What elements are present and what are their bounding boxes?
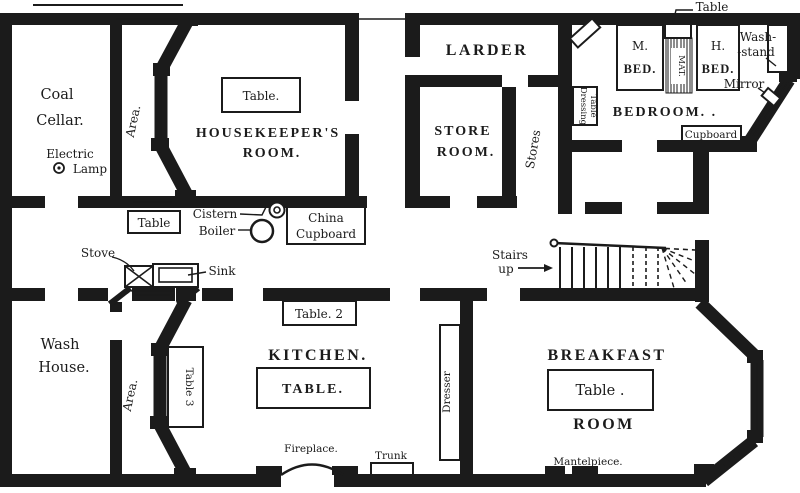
passage-table-label: Table bbox=[138, 216, 171, 230]
wash-house-label: Wash bbox=[40, 337, 79, 353]
floor-plan-drawing: Coal Cellar. Electric Lamp Area. HOUSEKE… bbox=[0, 0, 800, 493]
floor-plan: Coal Cellar. Electric Lamp Area. HOUSEKE… bbox=[0, 0, 800, 493]
m-bed-label2: BED. bbox=[624, 62, 657, 76]
mantelpiece-label: Mantelpiece. bbox=[553, 456, 622, 468]
stairs-label: Stairs bbox=[492, 248, 528, 262]
trunk-label: Trunk bbox=[375, 450, 408, 462]
breakfast-room-label2: ROOM bbox=[573, 416, 635, 433]
housekeeper-table-label: Table. bbox=[243, 89, 280, 103]
m-bed bbox=[617, 25, 663, 90]
wash-stand-label2: -stand bbox=[737, 45, 775, 59]
store-room-label2: ROOM. bbox=[437, 145, 496, 160]
stair-handrail bbox=[554, 243, 666, 248]
dressing-table-label2: Table bbox=[588, 94, 598, 117]
wash-stand-label: Wash- bbox=[740, 30, 776, 44]
coal-cellar-label: Coal bbox=[40, 87, 73, 103]
mat-label: MAT. bbox=[676, 55, 686, 77]
bedroom-small-table bbox=[665, 24, 691, 38]
stove-label: Stove bbox=[81, 246, 115, 260]
sink-label: Sink bbox=[208, 264, 236, 278]
cistern-label: Cistern bbox=[193, 207, 238, 221]
kitchen-table-label: TABLE. bbox=[282, 382, 344, 397]
dresser-label: Dresser bbox=[441, 370, 453, 413]
boiler-label: Boiler bbox=[199, 224, 236, 238]
mirror-label: Mirror bbox=[724, 77, 765, 91]
h-bed-label2: BED. bbox=[702, 62, 735, 76]
area-bottom-label: Area. bbox=[120, 378, 141, 414]
bedroom-table-callout: Table bbox=[696, 0, 729, 14]
coal-cellar-label2: Cellar. bbox=[36, 113, 84, 129]
kitchen-label: KITCHEN. bbox=[268, 347, 368, 364]
housekeepers-room-label: HOUSEKEEPER'S bbox=[196, 126, 340, 141]
boiler-circle bbox=[251, 220, 273, 242]
area-top-label: Area. bbox=[123, 104, 144, 140]
bedroom-label: BEDROOM. . bbox=[613, 105, 717, 120]
table3-label: Table 3 bbox=[183, 368, 195, 407]
stairs-label2: up bbox=[498, 262, 514, 276]
cupboard-label: Cupboard bbox=[685, 129, 738, 141]
breakfast-table-label: Table . bbox=[576, 383, 625, 399]
m-bed-label: M. bbox=[632, 39, 648, 53]
store-room-label: STORE bbox=[434, 124, 491, 139]
table2-label: Table. 2 bbox=[295, 307, 343, 321]
china-cupboard-label2: Cupboard bbox=[296, 227, 356, 241]
stair-newel bbox=[551, 240, 558, 247]
fireplace-label: Fireplace. bbox=[284, 443, 338, 455]
electric-lamp-label: Electric bbox=[46, 147, 94, 161]
larder-label: LARDER bbox=[446, 42, 529, 59]
dressing-table-label: Dressing bbox=[578, 87, 588, 126]
stores-label: Stores bbox=[523, 129, 544, 170]
housekeepers-room-label2: ROOM. bbox=[243, 146, 302, 161]
breakfast-bay-window bbox=[694, 303, 763, 481]
cistern-circle bbox=[270, 203, 285, 218]
h-bed-label: H. bbox=[711, 39, 725, 53]
stairs-up-arrow bbox=[518, 264, 553, 272]
china-cupboard-label: China bbox=[308, 211, 344, 225]
wash-house-label2: House. bbox=[38, 360, 89, 376]
staircase bbox=[551, 240, 698, 289]
electric-lamp-label2: Lamp bbox=[73, 162, 108, 176]
trunk bbox=[371, 463, 413, 475]
breakfast-room-label: BREAKFAST bbox=[547, 347, 666, 364]
